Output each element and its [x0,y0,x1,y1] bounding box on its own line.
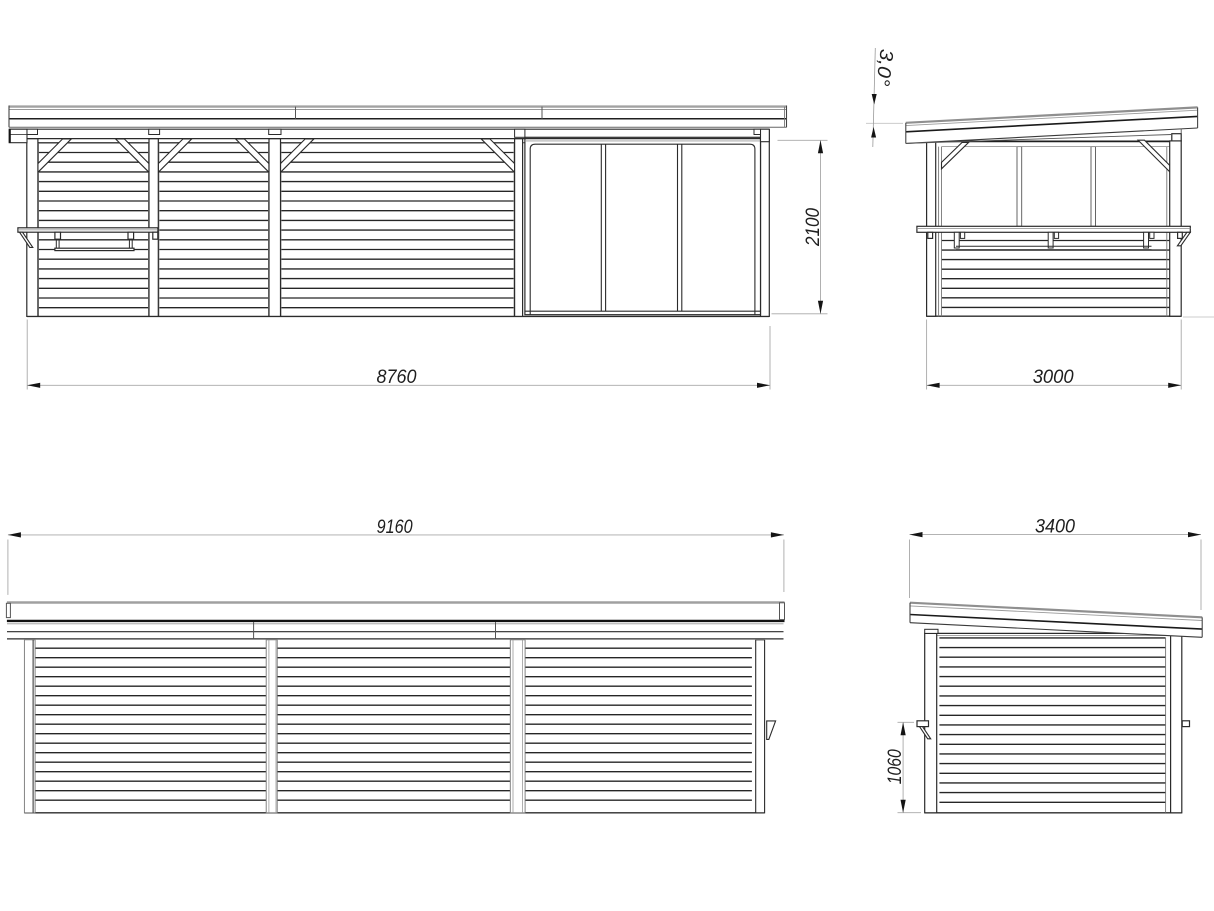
svg-text:3400: 3400 [1035,516,1075,537]
svg-text:2100: 2100 [803,208,824,247]
svg-text:3000: 3000 [1033,367,1074,388]
svg-text:9160: 9160 [377,517,413,538]
svg-text:1060: 1060 [885,749,906,784]
svg-text:8760: 8760 [377,367,417,388]
